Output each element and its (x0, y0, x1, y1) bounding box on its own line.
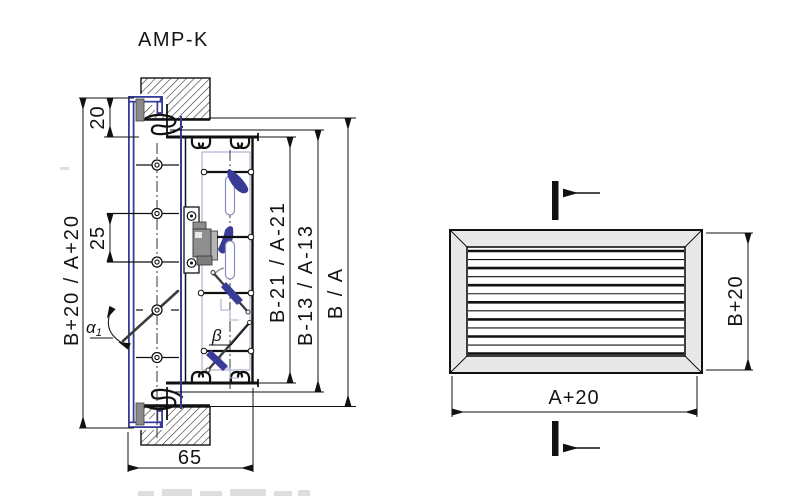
pivot-hole-center (155, 211, 159, 215)
caption-fragment (274, 491, 292, 496)
caption-fragment (230, 489, 266, 496)
alpha-label: α1 (86, 318, 102, 339)
caption-fragment (162, 489, 192, 496)
clip (238, 139, 249, 148)
link-joint (248, 290, 254, 296)
beta-label: β (211, 326, 222, 345)
dim-overall-label: B+20 / A+20 (61, 214, 83, 346)
technical-drawing-svg: AMP-K (0, 0, 800, 500)
link-joint (248, 169, 254, 175)
clip (199, 372, 210, 381)
blade-end (211, 271, 215, 275)
link-joint (198, 290, 204, 296)
damper-internals: β (184, 169, 254, 378)
pivot-hole-center (155, 355, 159, 359)
link-joint (248, 234, 254, 240)
dim-front-width-label: A+20 (548, 387, 599, 409)
screw-center (190, 215, 193, 218)
gasket-top (136, 99, 144, 121)
frame-hook-top-hollow (158, 103, 161, 113)
dim-front-height-label: B+20 (725, 275, 747, 326)
caption-fragment (298, 490, 310, 496)
gearbox-foot (197, 256, 212, 265)
blade-end (248, 321, 252, 325)
section-view: α1 (61, 78, 356, 472)
frame-hook-bottom-hollow (158, 412, 161, 422)
pivot-hole-center (155, 260, 159, 264)
pivot-hole-center (155, 308, 159, 312)
frame-arm-bottom-hollow (130, 423, 160, 426)
blade-end (246, 310, 250, 314)
dim-pitch-label: 25 (87, 226, 109, 250)
section-cut-bar-top (552, 181, 559, 220)
caption-fragment (200, 491, 222, 496)
dim-depth-label: 65 (178, 447, 202, 469)
blade-slot (226, 241, 235, 279)
gasket-bottom (136, 403, 144, 425)
dim-duct-label: B / A (325, 267, 347, 319)
link-joint (201, 169, 207, 175)
link-joint (201, 348, 207, 354)
dim-inner-front-label: B-21 / A-21 (267, 201, 289, 323)
alpha-arc (108, 308, 129, 347)
dim-inner-rear-label: B-13 / A-13 (295, 224, 317, 346)
caption-fragment (138, 491, 154, 496)
gearbox-slot (195, 232, 202, 238)
frame-arm-top-hollow (130, 98, 160, 101)
pivot-hole-center (155, 163, 159, 167)
drawing-canvas: AMP-K (0, 0, 800, 500)
link-joint (248, 348, 254, 354)
scan-artifact (60, 167, 69, 170)
clip (199, 139, 210, 148)
dim-flange-label: 20 (87, 105, 109, 129)
face-louver-rows (107, 160, 179, 363)
screw-center (190, 262, 193, 265)
front-view: B+20 A+20 (450, 181, 753, 456)
clip (238, 372, 249, 381)
section-cut-bar-bottom (552, 421, 559, 456)
drawing-title: AMP-K (138, 29, 209, 51)
blade-end (206, 368, 210, 372)
